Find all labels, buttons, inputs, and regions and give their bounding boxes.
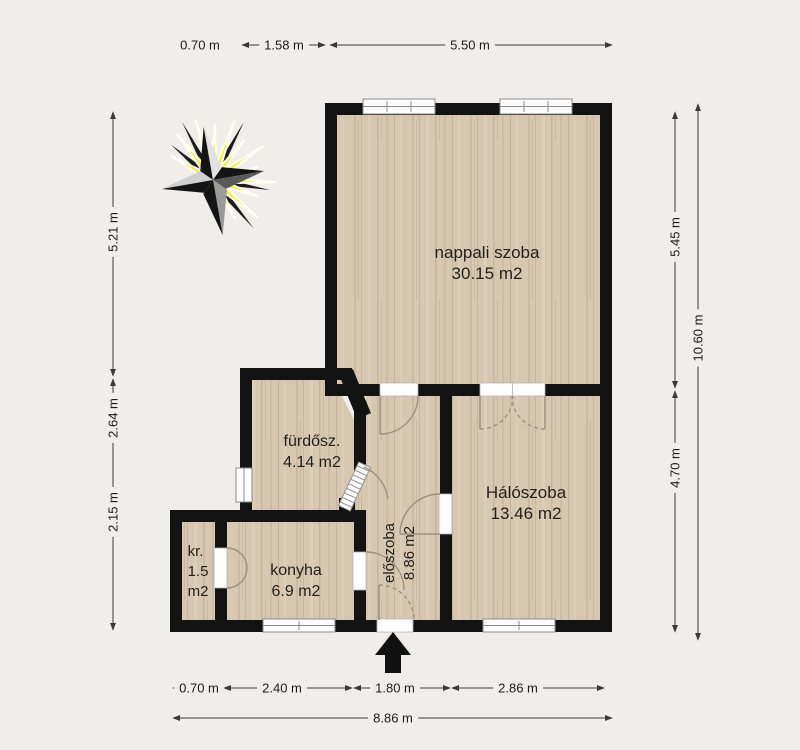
dimension-label-top-3: 5.50 m bbox=[445, 38, 495, 53]
dimension-label-left-3: 2.15 m bbox=[106, 487, 121, 537]
floor-plan: nappali szoba 30.15 m2 fürdősz. 4.14 m2 … bbox=[0, 0, 800, 750]
room-area: 6.9 m2 bbox=[270, 581, 322, 602]
dimension-label-bottom-total: 8.86 m bbox=[368, 711, 418, 726]
room-name: nappali szoba bbox=[435, 242, 540, 263]
dimension-label-left-2: 2.64 m bbox=[106, 393, 121, 443]
dimension-label-bottom-3: 1.80 m bbox=[370, 681, 420, 696]
room-area-value: 1.5 bbox=[188, 562, 209, 582]
room-name: kr. bbox=[188, 542, 209, 562]
room-label-eloszoba: előszoba 8.86 m2 bbox=[380, 523, 420, 583]
dimension-label-bottom-2: 2.40 m bbox=[257, 681, 307, 696]
room-name: konyha bbox=[270, 560, 322, 581]
dimension-label-left-1: 5.21 m bbox=[106, 207, 121, 257]
room-area: 4.14 m2 bbox=[283, 452, 341, 473]
room-name: előszoba bbox=[380, 523, 400, 583]
floor-plan-drawing bbox=[0, 0, 800, 750]
dimension-label-top-1: 0.70 m bbox=[175, 38, 225, 53]
dimension-label-right-1: 5.45 m bbox=[668, 212, 683, 262]
entrance-arrow-icon bbox=[375, 632, 411, 673]
room-area: 8.86 m2 bbox=[400, 523, 420, 583]
room-area: 13.46 m2 bbox=[486, 503, 566, 524]
compass-sun-icon bbox=[152, 118, 275, 244]
room-label-haloszoba: Hálószoba 13.46 m2 bbox=[486, 482, 566, 524]
room-name: fürdősz. bbox=[283, 431, 341, 452]
room-label-nappali: nappali szoba 30.15 m2 bbox=[435, 242, 540, 284]
dimension-label-right-total: 10.60 m bbox=[691, 310, 706, 367]
room-label-furdosz: fürdősz. 4.14 m2 bbox=[283, 431, 341, 473]
dimension-label-bottom-1: 0.70 m bbox=[174, 681, 224, 696]
room-area: 30.15 m2 bbox=[435, 263, 540, 284]
dimension-label-top-2: 1.58 m bbox=[259, 38, 309, 53]
room-label-kr: kr. 1.5 m2 bbox=[188, 542, 209, 602]
room-name: Hálószoba bbox=[486, 482, 566, 503]
room-label-konyha: konyha 6.9 m2 bbox=[270, 560, 322, 602]
room-area-unit: m2 bbox=[188, 582, 209, 602]
dimension-label-right-2: 4.70 m bbox=[668, 443, 683, 493]
dimension-label-bottom-4: 2.86 m bbox=[493, 681, 543, 696]
